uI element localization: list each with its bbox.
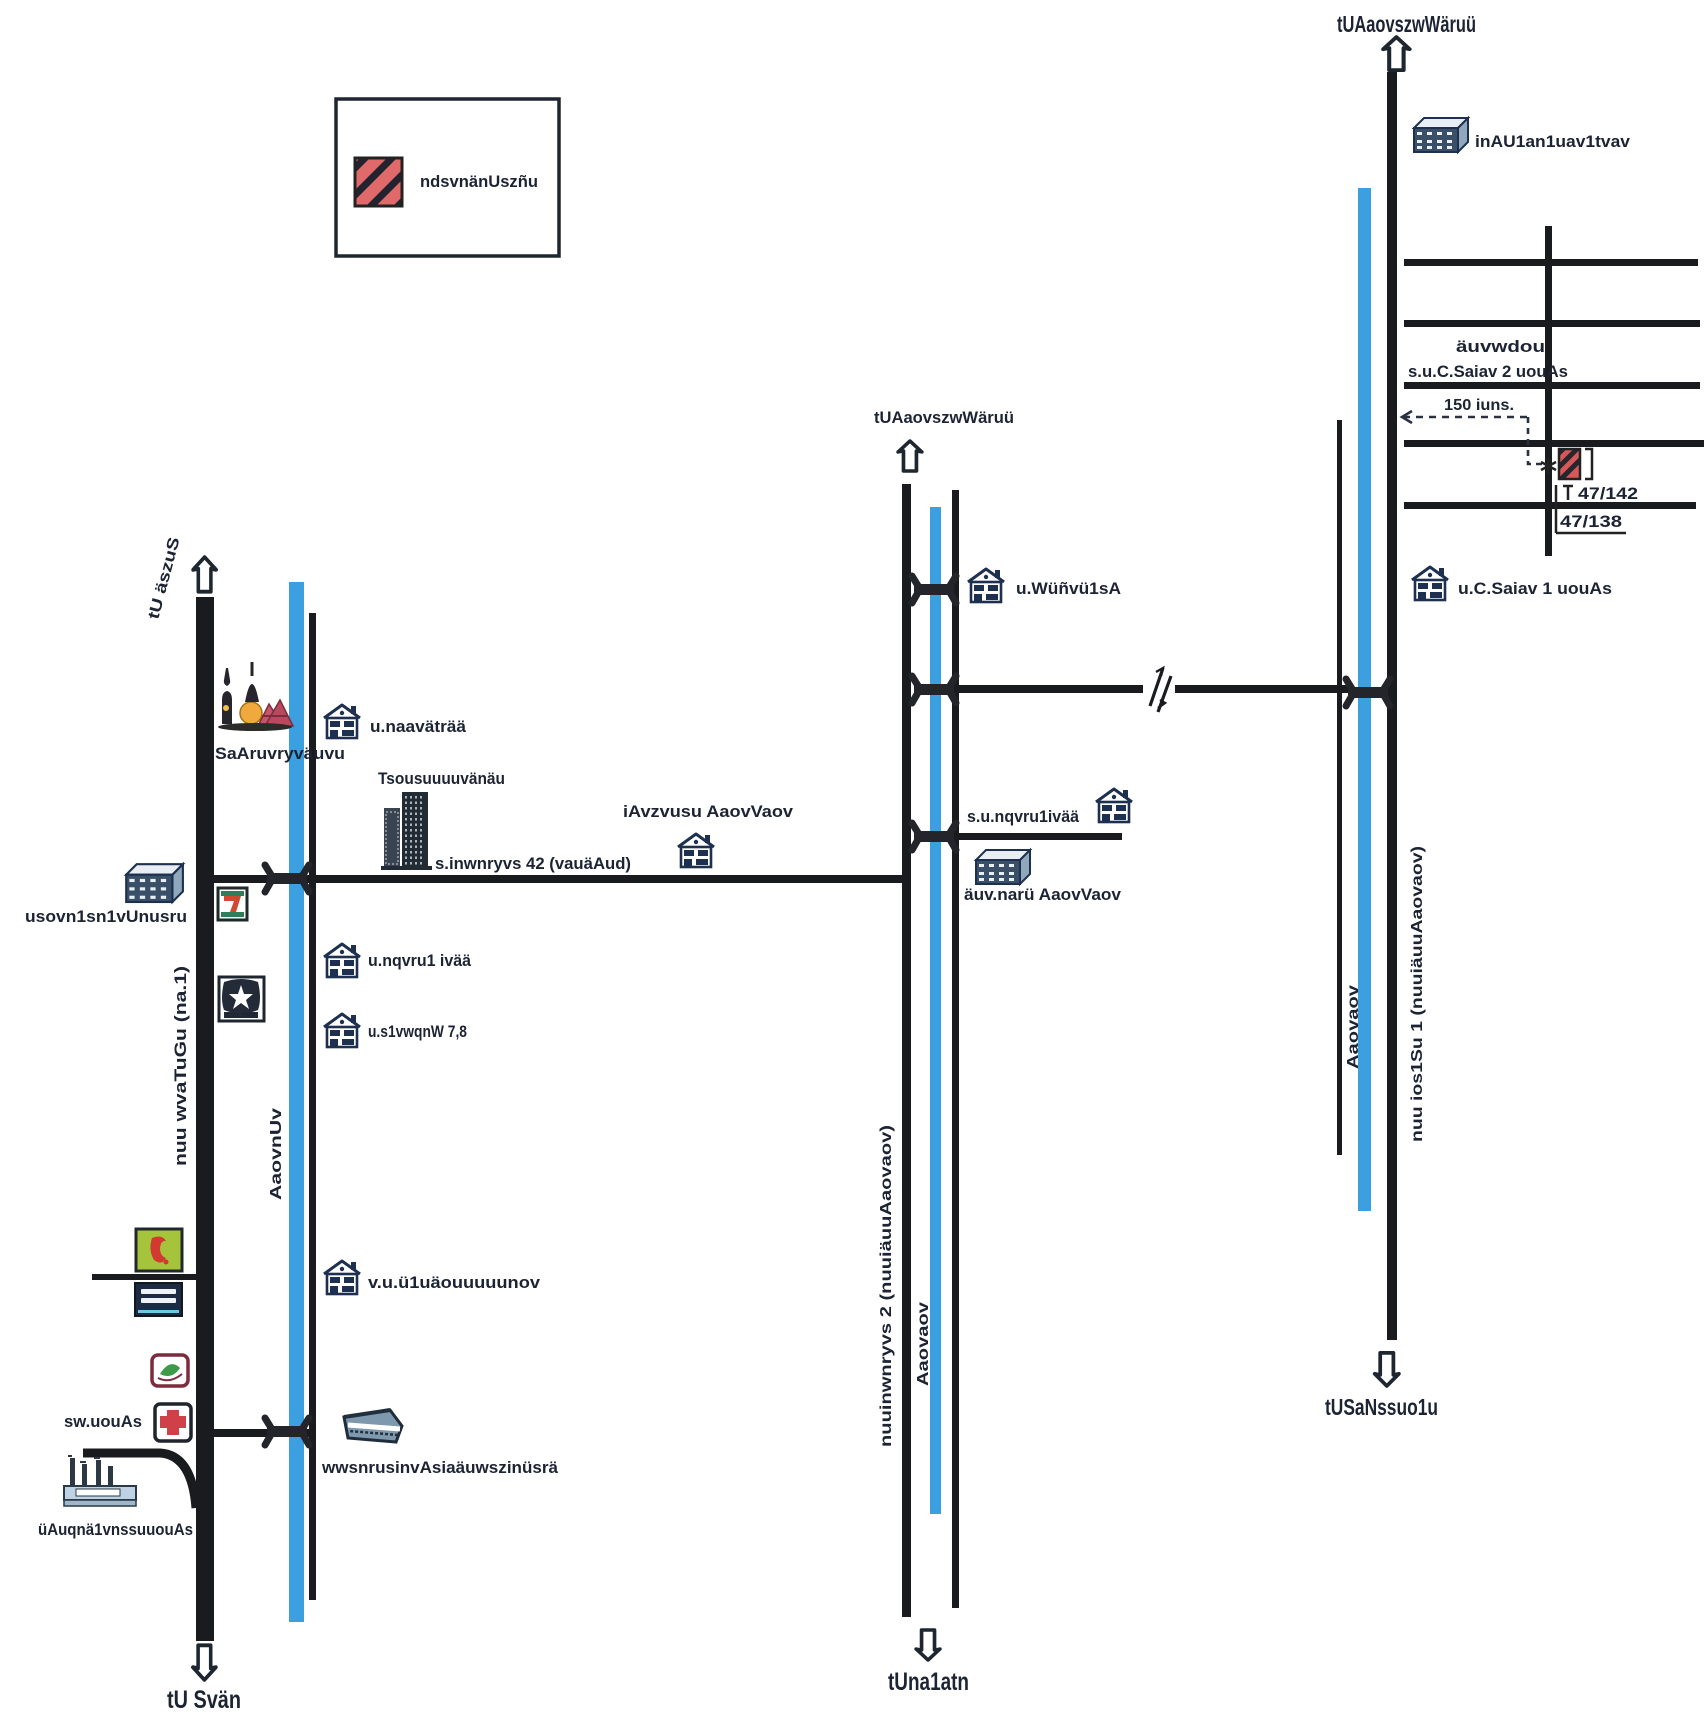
- svg-text:tU Svän: tU Svän: [167, 1686, 241, 1714]
- svg-text:nuuinwnryvs 2 (nuuiäuuAaovaov): nuuinwnryvs 2 (nuuiäuuAaovaov): [878, 1125, 895, 1447]
- svg-text:SaAruvryväuvu: SaAruvryväuvu: [215, 744, 345, 763]
- svg-text:s.u.nqvru1ivää: s.u.nqvru1ivää: [967, 807, 1080, 826]
- svg-text:Aaovaov: Aaovaov: [1345, 985, 1362, 1069]
- svg-text:ndsvnänUszñu: ndsvnänUszñu: [420, 172, 538, 191]
- svg-text:v.u.ü1uäouuuuunov: v.u.ü1uäouuuuunov: [368, 1273, 541, 1292]
- svg-text:üAuqnä1vnssuuouAs: üAuqnä1vnssuuouAs: [38, 1520, 193, 1539]
- svg-text:Tsousuuuuvänäu: Tsousuuuuvänäu: [378, 769, 505, 788]
- svg-text:äuvwdou: äuvwdou: [1456, 337, 1545, 356]
- svg-text:s.inwnryvs 42 (vauäAud): s.inwnryvs 42 (vauäAud): [435, 854, 631, 873]
- svg-text:u.nqvru1 ivää: u.nqvru1 ivää: [368, 951, 471, 970]
- svg-text:nuu ios1Su 1 (nuuiäuuAaovaov): nuu ios1Su 1 (nuuiäuuAaovaov): [1409, 846, 1426, 1142]
- svg-text:u.s1vwqnW 7,8: u.s1vwqnW 7,8: [368, 1022, 467, 1041]
- svg-text:CALTEX: CALTEX: [226, 1013, 256, 1020]
- svg-text:usovn1sn1vUnusru: usovn1sn1vUnusru: [25, 907, 187, 926]
- svg-text:tUna1atn: tUna1atn: [888, 1668, 969, 1696]
- svg-text:u.naaväträä: u.naaväträä: [370, 717, 467, 736]
- svg-text:s.u.C.Saiav 2 uouAs: s.u.C.Saiav 2 uouAs: [1408, 362, 1568, 381]
- svg-text:wwsnrusinvAsiaäuwszinüsrä: wwsnrusinvAsiaäuwszinüsrä: [321, 1458, 559, 1477]
- svg-text:äuv.narü AaovVaov: äuv.narü AaovVaov: [964, 885, 1122, 904]
- svg-text:u.C.Saiav 1 uouAs: u.C.Saiav 1 uouAs: [1458, 579, 1612, 598]
- svg-text:tUAaovszwWäruü: tUAaovszwWäruü: [1337, 11, 1476, 37]
- svg-text:sw.uouAs: sw.uouAs: [64, 1412, 142, 1431]
- svg-text:47/138: 47/138: [1560, 512, 1622, 531]
- svg-text:Aaovaov: Aaovaov: [915, 1302, 932, 1386]
- svg-text:inAU1an1uav1tvav: inAU1an1uav1tvav: [1475, 132, 1631, 151]
- svg-text:iAvzvusu AaovVaov: iAvzvusu AaovVaov: [623, 802, 794, 821]
- svg-text:150 iuns.: 150 iuns.: [1444, 397, 1514, 414]
- svg-text:tUSaNssuo1u: tUSaNssuo1u: [1325, 1394, 1438, 1420]
- svg-text:nuu wvaTuGu (na.1): nuu wvaTuGu (na.1): [171, 966, 190, 1166]
- svg-text:u.Wüñvü1sA: u.Wüñvü1sA: [1016, 579, 1121, 598]
- svg-text:tUAaovszwWäruü: tUAaovszwWäruü: [874, 408, 1014, 427]
- svg-text:47/142: 47/142: [1578, 484, 1638, 503]
- svg-text:AaovnUv: AaovnUv: [268, 1108, 285, 1200]
